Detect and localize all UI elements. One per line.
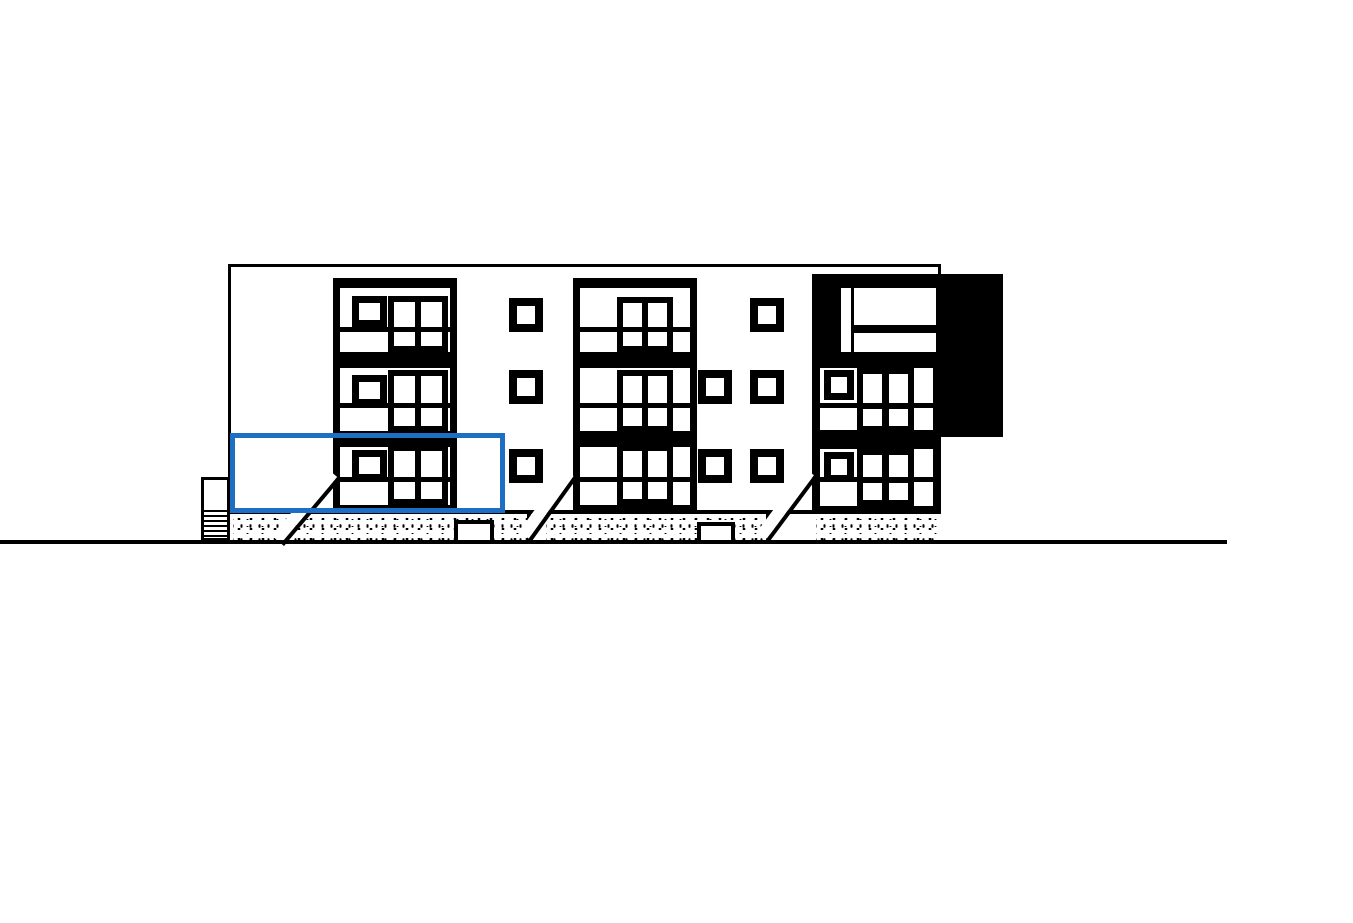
window-pane xyxy=(421,332,442,346)
window-pane xyxy=(648,376,667,403)
elevation-drawing-canvas xyxy=(0,0,1353,923)
wall-window xyxy=(750,449,784,483)
window-pane xyxy=(648,303,667,327)
ground-line xyxy=(0,540,1227,544)
foundation-hatch-right xyxy=(816,514,938,541)
foundation-vent xyxy=(697,522,735,541)
large-window xyxy=(388,370,448,432)
window-pane xyxy=(623,303,642,327)
small-window xyxy=(352,375,387,406)
large-window xyxy=(388,296,448,352)
large-window xyxy=(857,368,914,432)
small-window xyxy=(352,296,387,327)
window-pane-wide xyxy=(854,288,936,325)
wall-window xyxy=(750,370,784,404)
wall-window xyxy=(698,370,732,404)
wall-window xyxy=(509,370,543,404)
stair-steps-hatch xyxy=(204,510,227,538)
window-pane xyxy=(623,482,642,499)
window-pane xyxy=(648,482,667,499)
selection-rectangle[interactable] xyxy=(230,433,505,513)
window-pane xyxy=(648,451,667,477)
window-pane xyxy=(863,455,882,477)
wall-window xyxy=(750,298,784,332)
wall-window xyxy=(509,449,543,483)
window-pane xyxy=(863,409,882,426)
window-pane xyxy=(623,376,642,403)
wall-window xyxy=(509,298,543,332)
window-pane xyxy=(623,332,642,346)
window-pane xyxy=(421,376,442,403)
window-pane xyxy=(623,408,642,426)
small-window xyxy=(824,452,854,482)
foundation-vent xyxy=(454,520,494,541)
wall-window xyxy=(698,449,732,483)
window-pane xyxy=(889,409,908,426)
window-pane xyxy=(863,483,882,500)
window-pane-narrow xyxy=(841,288,851,352)
window-pane xyxy=(889,455,908,477)
dark-annex-block xyxy=(941,274,1003,437)
window-pane-wide xyxy=(854,333,936,352)
window-pane xyxy=(421,408,442,426)
window-pane xyxy=(648,332,667,346)
large-window xyxy=(617,445,673,505)
window-pane xyxy=(889,483,908,500)
window-pane xyxy=(394,302,415,327)
window-pane xyxy=(889,374,908,403)
large-window xyxy=(617,297,673,352)
window-pane xyxy=(394,376,415,403)
large-window xyxy=(617,370,673,432)
window-pane xyxy=(394,408,415,426)
large-window xyxy=(857,449,914,506)
window-pane xyxy=(648,408,667,426)
small-window xyxy=(824,370,854,400)
window-pane xyxy=(421,302,442,327)
window-pane xyxy=(394,332,415,346)
window-pane xyxy=(863,374,882,403)
window-pane xyxy=(623,451,642,477)
